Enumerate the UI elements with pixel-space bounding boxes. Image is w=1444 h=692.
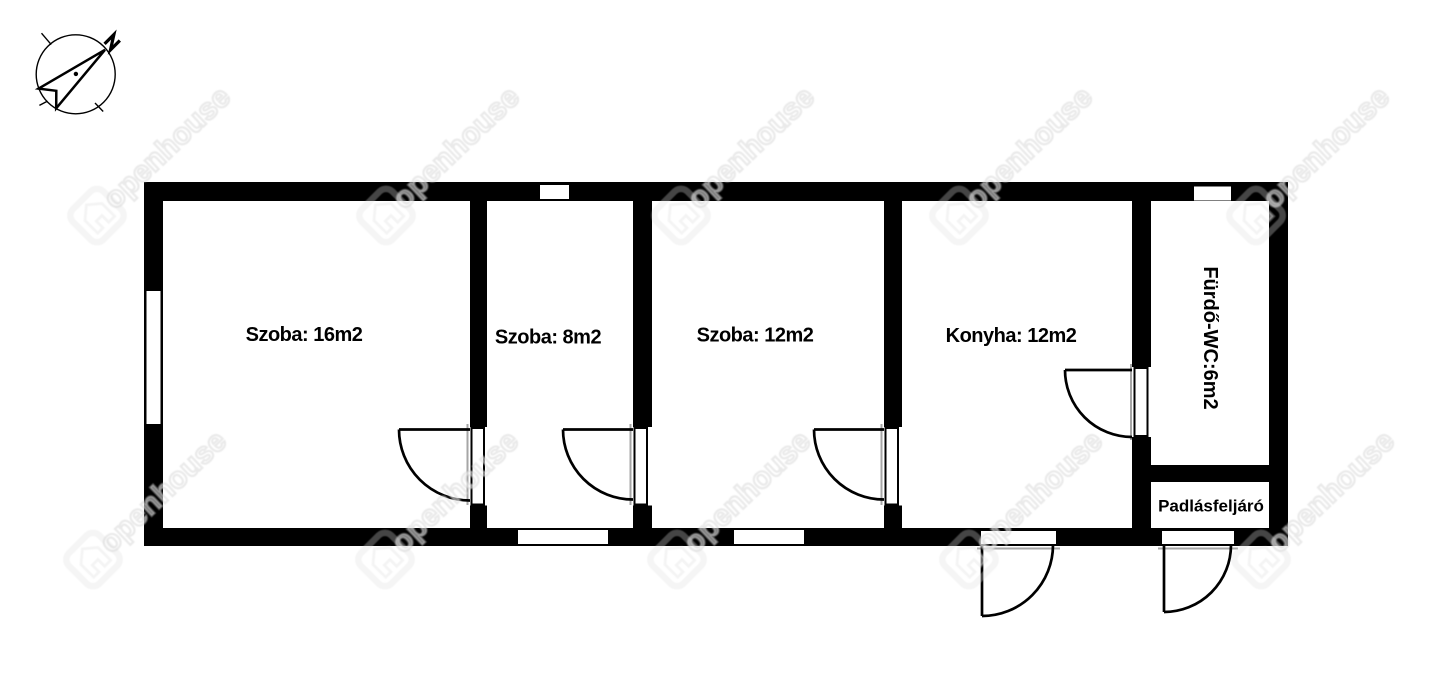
- svg-text:Szoba: 8m2: Szoba: 8m2: [495, 327, 602, 349]
- svg-text:Padlásfeljáró: Padlásfeljáró: [1158, 497, 1264, 516]
- svg-text:Szoba: 16m2: Szoba: 16m2: [246, 324, 363, 346]
- svg-text:Szoba: 12m2: Szoba: 12m2: [697, 325, 814, 347]
- svg-text:Fürdő-WC:6m2: Fürdő-WC:6m2: [1199, 266, 1221, 409]
- svg-text:Konyha: 12m2: Konyha: 12m2: [946, 325, 1077, 347]
